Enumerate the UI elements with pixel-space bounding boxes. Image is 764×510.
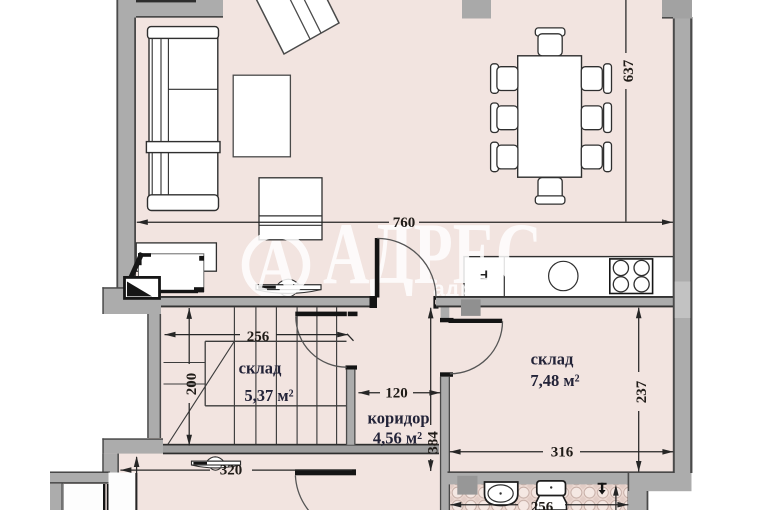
svg-text:коридор: коридор — [368, 409, 430, 428]
svg-text:200: 200 — [184, 373, 200, 396]
svg-text:А: А — [255, 223, 298, 308]
svg-text:637: 637 — [621, 59, 637, 82]
svg-text:256: 256 — [247, 329, 270, 345]
svg-text:316: 316 — [551, 445, 574, 461]
svg-text:256: 256 — [531, 500, 554, 510]
svg-text:384: 384 — [426, 431, 442, 454]
svg-text:320: 320 — [220, 463, 243, 479]
svg-text:4,56 м²: 4,56 м² — [373, 429, 422, 448]
svg-text:760: 760 — [393, 215, 416, 231]
svg-text:120: 120 — [385, 385, 408, 401]
svg-text:5,37 м²: 5,37 м² — [244, 386, 293, 405]
svg-text:237: 237 — [634, 380, 650, 403]
svg-text:склад: склад — [531, 350, 574, 369]
svg-text:7,48 м²: 7,48 м² — [530, 371, 579, 390]
svg-text:склад: склад — [239, 359, 282, 378]
